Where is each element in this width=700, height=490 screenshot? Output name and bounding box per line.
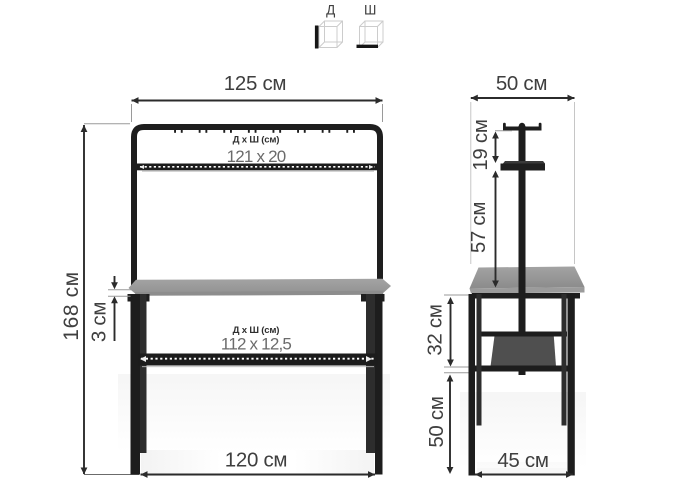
svg-text:57 см: 57 см [467,202,490,253]
svg-text:Д: Д [326,3,335,18]
svg-text:Д х Ш (см): Д х Ш (см) [233,134,280,145]
svg-text:125 см: 125 см [224,72,286,95]
svg-text:32 см: 32 см [424,304,447,355]
svg-text:112 x 12,5: 112 x 12,5 [221,335,291,354]
svg-text:19 см: 19 см [469,119,492,170]
svg-text:120 см: 120 см [225,449,287,472]
svg-text:168 см: 168 см [60,271,83,340]
svg-text:50 см: 50 см [425,396,448,447]
svg-text:3 см: 3 см [88,302,111,342]
svg-text:121 x 20: 121 x 20 [227,147,286,166]
svg-text:Ш: Ш [364,3,376,18]
svg-text:50 см: 50 см [496,72,547,95]
svg-text:45 см: 45 см [497,449,548,472]
